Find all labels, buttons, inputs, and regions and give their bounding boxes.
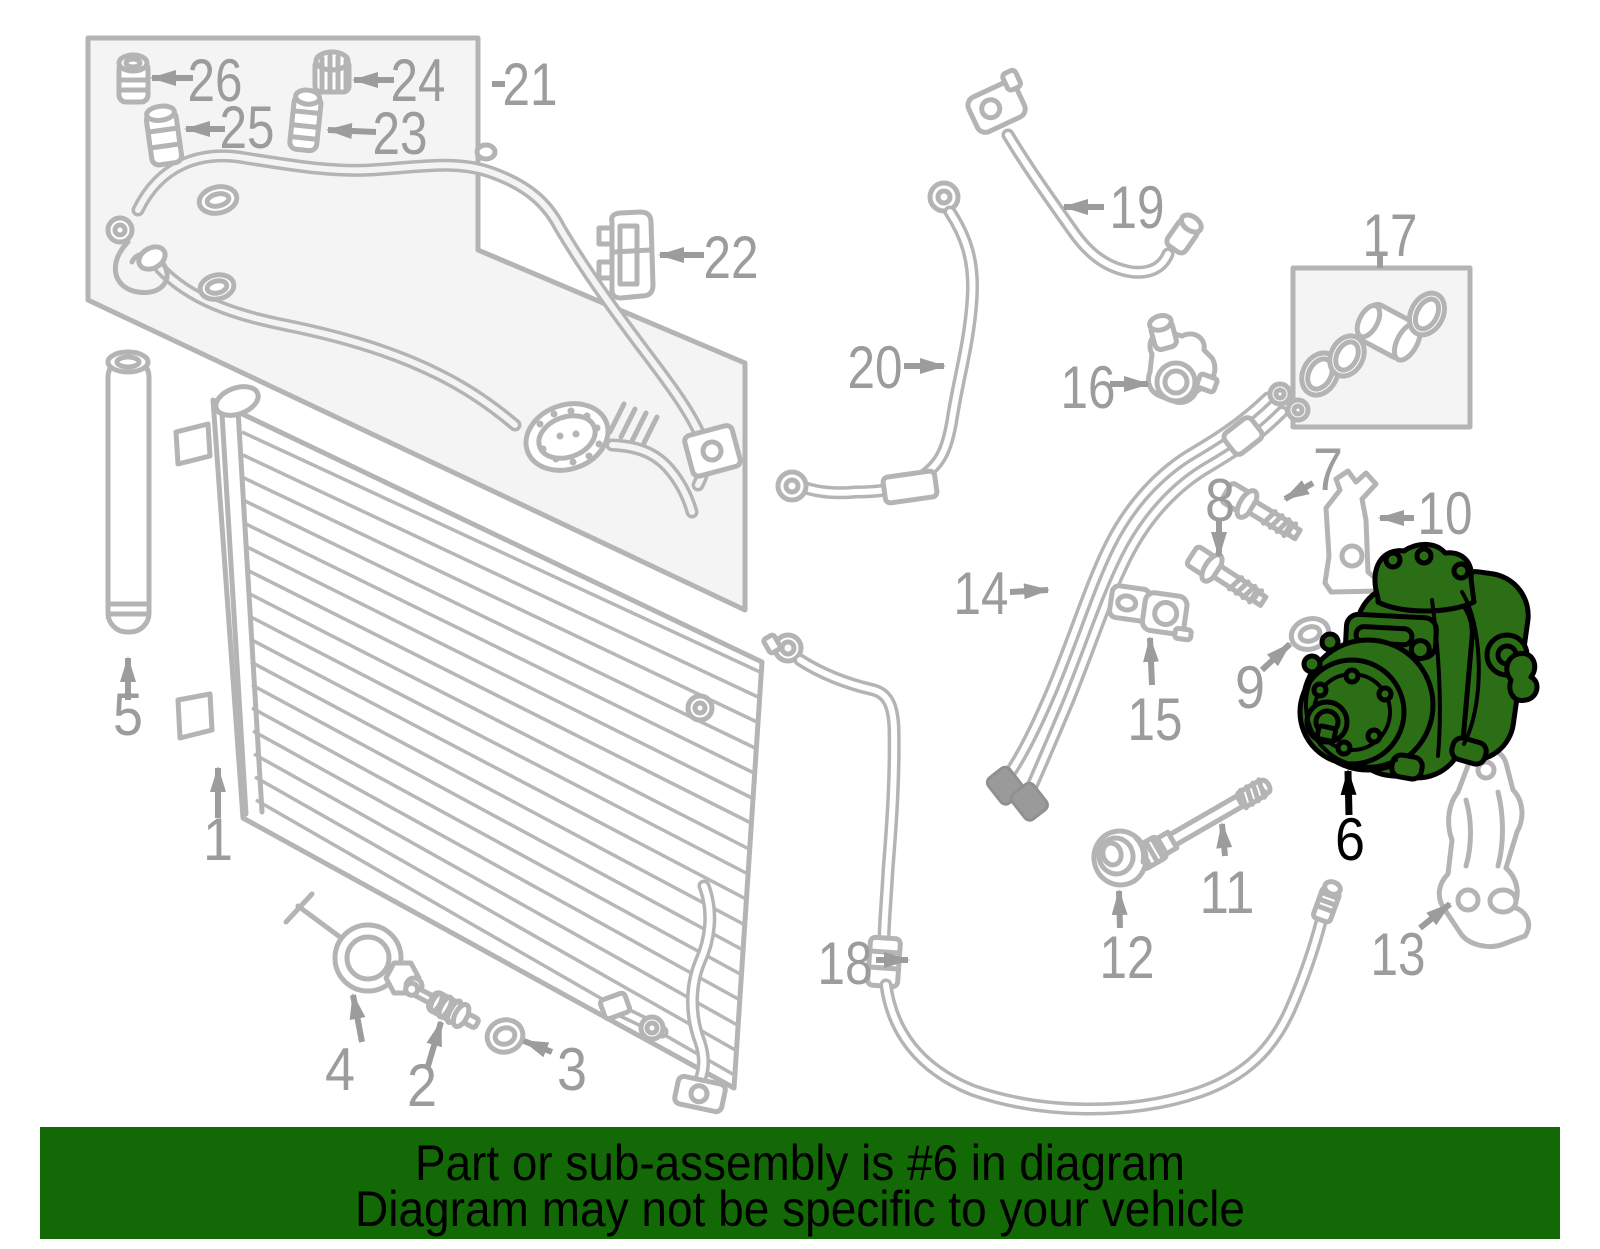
callout-arrow-14 — [1010, 590, 1048, 592]
parts-diagram-page: 1 2 3 4 5 6 7 8 9 10 11 12 13 14 15 16 1… — [0, 0, 1600, 1249]
callout-6-highlighted[interactable]: 6 — [1335, 806, 1365, 873]
callout-8[interactable]: 8 — [1205, 467, 1235, 534]
callout-3[interactable]: 3 — [557, 1036, 587, 1103]
part-15-clamp — [1107, 585, 1196, 640]
part-24-valve-cap — [315, 52, 349, 92]
disclaimer-banner: Part or sub-assembly is #6 in diagram Di… — [40, 1127, 1560, 1239]
part-12-seal-ring — [1088, 825, 1152, 891]
callout-26[interactable]: 26 — [188, 47, 243, 114]
callout-arrow-23 — [328, 130, 376, 132]
callout-19[interactable]: 19 — [1110, 174, 1165, 241]
callout-arrow-7 — [1285, 483, 1313, 499]
callout-9[interactable]: 9 — [1235, 654, 1265, 721]
part-19-hose — [962, 69, 1205, 272]
callout-arrow-4 — [353, 995, 362, 1042]
part-4-pressure-switch — [286, 894, 422, 994]
callout-21[interactable]: 21 — [503, 51, 558, 118]
callout-20[interactable]: 20 — [848, 334, 903, 401]
part-3-o-ring — [483, 1015, 527, 1057]
callout-15[interactable]: 15 — [1128, 686, 1183, 753]
callout-13[interactable]: 13 — [1371, 921, 1426, 988]
callout-14[interactable]: 14 — [954, 560, 1009, 627]
callout-4[interactable]: 4 — [325, 1036, 355, 1103]
banner-line-2: Diagram may not be specific to your vehi… — [355, 1181, 1245, 1237]
part-16-sensor — [1148, 313, 1218, 402]
callout-18[interactable]: 18 — [818, 930, 873, 997]
callout-arrow-15 — [1150, 638, 1152, 685]
callout-11[interactable]: 11 — [1200, 859, 1255, 926]
callout-arrow-3 — [524, 1041, 552, 1052]
callout-1[interactable]: 1 — [203, 806, 233, 873]
callout-22[interactable]: 22 — [704, 224, 759, 291]
part-25-valve-core — [145, 104, 183, 166]
part-8-bolt — [1184, 542, 1272, 613]
callout-16[interactable]: 16 — [1061, 354, 1116, 421]
callout-12[interactable]: 12 — [1100, 924, 1155, 991]
part-11-bolt — [1132, 774, 1275, 870]
part-22-clip — [599, 212, 653, 298]
callout-10[interactable]: 10 — [1418, 480, 1473, 547]
callout-arrow-12 — [1119, 891, 1120, 928]
callout-5[interactable]: 5 — [113, 681, 143, 748]
callout-17[interactable]: 17 — [1363, 202, 1418, 269]
part-5-receiver-drier — [108, 352, 149, 632]
callout-arrow-11 — [1222, 824, 1225, 856]
callout-7[interactable]: 7 — [1313, 436, 1343, 503]
callout-2[interactable]: 2 — [407, 1052, 437, 1119]
part-26-valve-cap — [119, 55, 148, 102]
callout-24[interactable]: 24 — [391, 47, 446, 114]
callout-arrow-9 — [1262, 644, 1290, 670]
diagram-canvas: 1 2 3 4 5 6 7 8 9 10 11 12 13 14 15 16 1… — [0, 0, 1600, 1249]
part-13-bracket — [1439, 750, 1528, 946]
part-23-valve-core — [289, 89, 322, 151]
